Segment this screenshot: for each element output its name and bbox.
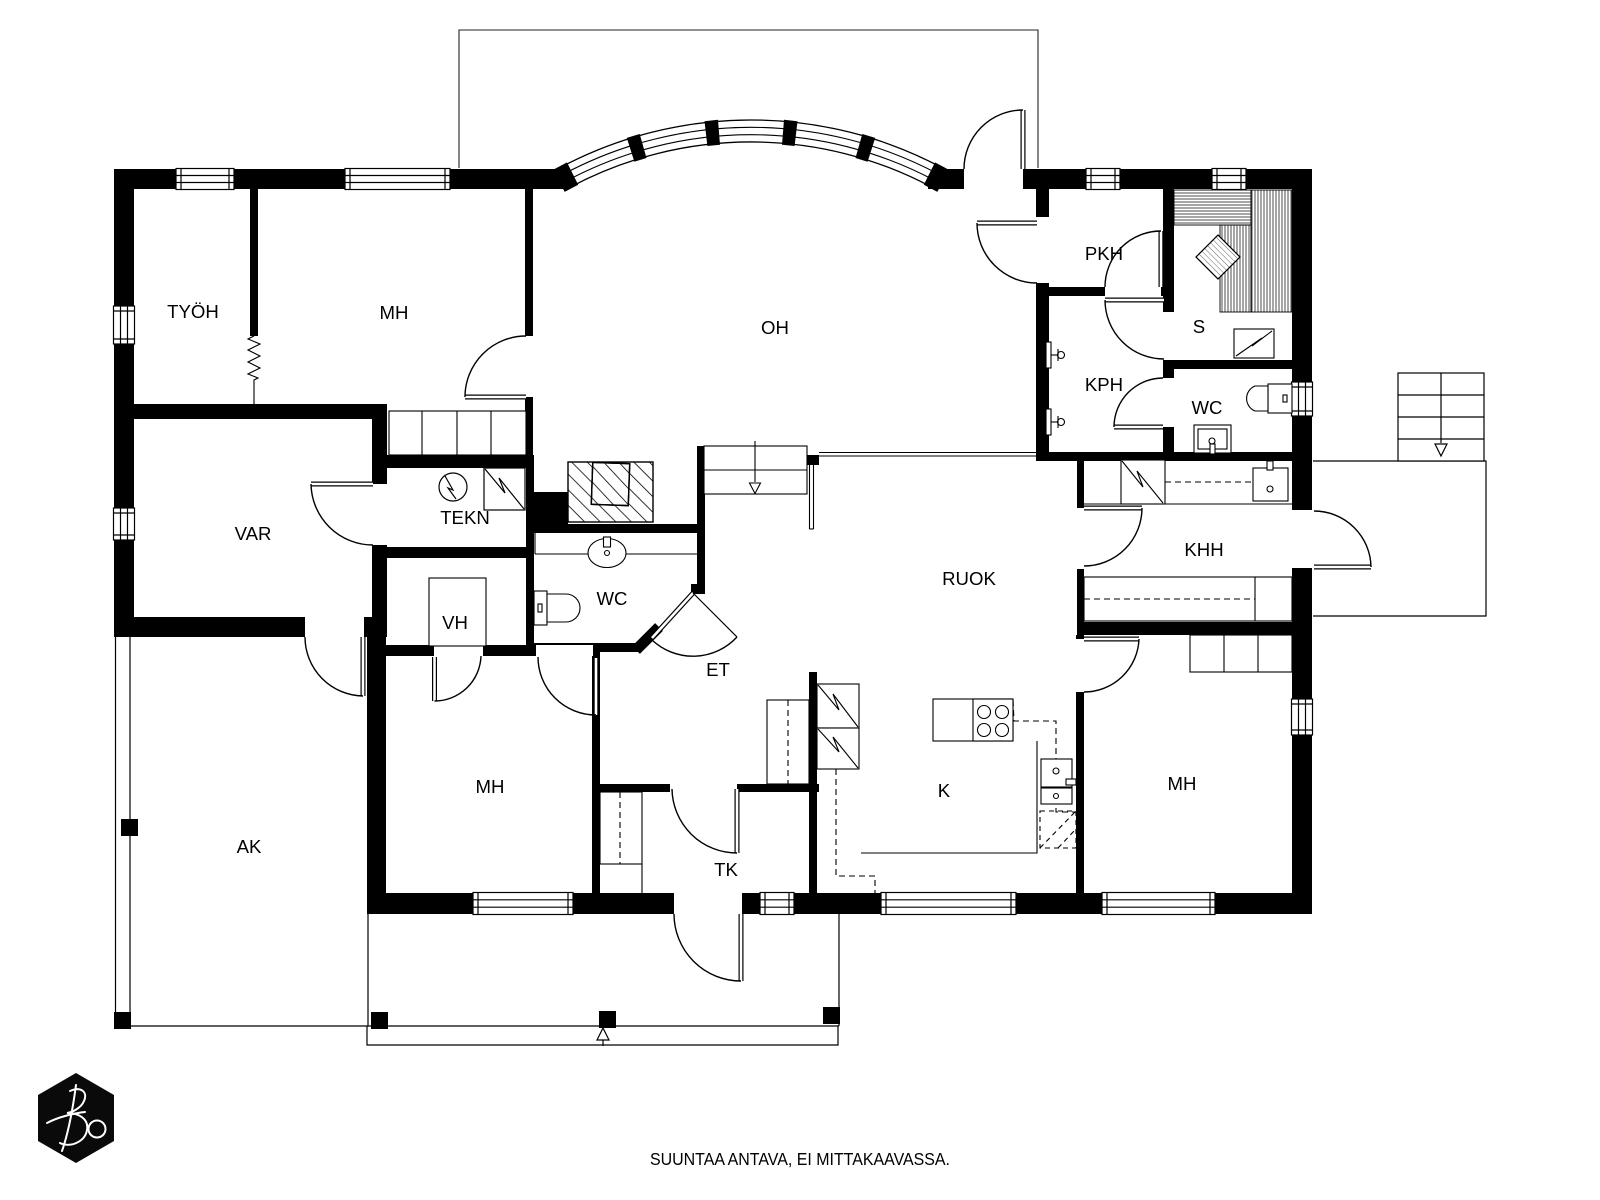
svg-text:PKH: PKH (1085, 243, 1123, 264)
svg-text:WC: WC (597, 588, 628, 609)
svg-text:TYÖH: TYÖH (167, 301, 219, 322)
svg-text:RUOK: RUOK (942, 568, 996, 589)
svg-text:MH: MH (476, 776, 505, 797)
svg-text:ET: ET (706, 659, 730, 680)
svg-text:KHH: KHH (1184, 539, 1223, 560)
svg-text:VAR: VAR (235, 523, 272, 544)
svg-text:S: S (1193, 316, 1205, 337)
svg-text:MH: MH (380, 302, 409, 323)
svg-text:OH: OH (761, 317, 789, 338)
svg-text:TK: TK (714, 859, 738, 880)
svg-text:K: K (938, 780, 951, 801)
svg-text:SUUNTAA ANTAVA, EI MITTAKAAVAS: SUUNTAA ANTAVA, EI MITTAKAAVASSA. (650, 1149, 950, 1169)
svg-text:TEKN: TEKN (440, 507, 490, 528)
svg-text:WC: WC (1192, 397, 1223, 418)
svg-text:MH: MH (1168, 773, 1197, 794)
svg-text:AK: AK (237, 836, 262, 857)
svg-text:VH: VH (442, 612, 468, 633)
svg-text:KPH: KPH (1085, 374, 1123, 395)
